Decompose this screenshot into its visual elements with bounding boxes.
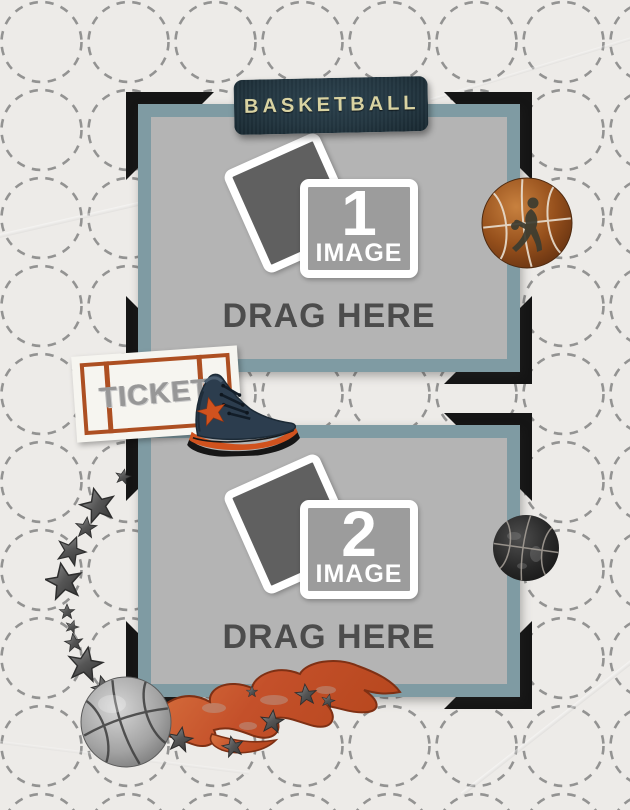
photo-dropzone-1[interactable]: 1 IMAGE DRAG HERE (151, 117, 507, 359)
front-photo-icon: 2 IMAGE (300, 500, 418, 599)
drag-here-label: DRAG HERE (222, 297, 435, 336)
photo-frame-1: 1 IMAGE DRAG HERE (138, 104, 520, 372)
photo-stack-icon: 1 IMAGE (234, 149, 424, 283)
flaming-basketball-sticker (62, 648, 407, 793)
image-label: IMAGE (316, 560, 403, 589)
basketball-banner: BASKETBALL (233, 76, 428, 135)
photo-stack-icon: 2 IMAGE (234, 470, 424, 604)
basketball-player-ball-sticker (481, 177, 573, 269)
sneaker-sticker (181, 364, 302, 458)
front-photo-icon: 1 IMAGE (300, 179, 418, 278)
banner-title: BASKETBALL (244, 92, 420, 119)
gray-basketball (71, 667, 182, 778)
image-label: IMAGE (316, 239, 403, 268)
frame-number: 2 (341, 508, 377, 560)
dark-basketball-sticker (492, 514, 560, 582)
frame-number: 1 (341, 187, 377, 239)
scrapbook-page: 1 IMAGE DRAG HERE 2 IMAGE (0, 0, 630, 810)
